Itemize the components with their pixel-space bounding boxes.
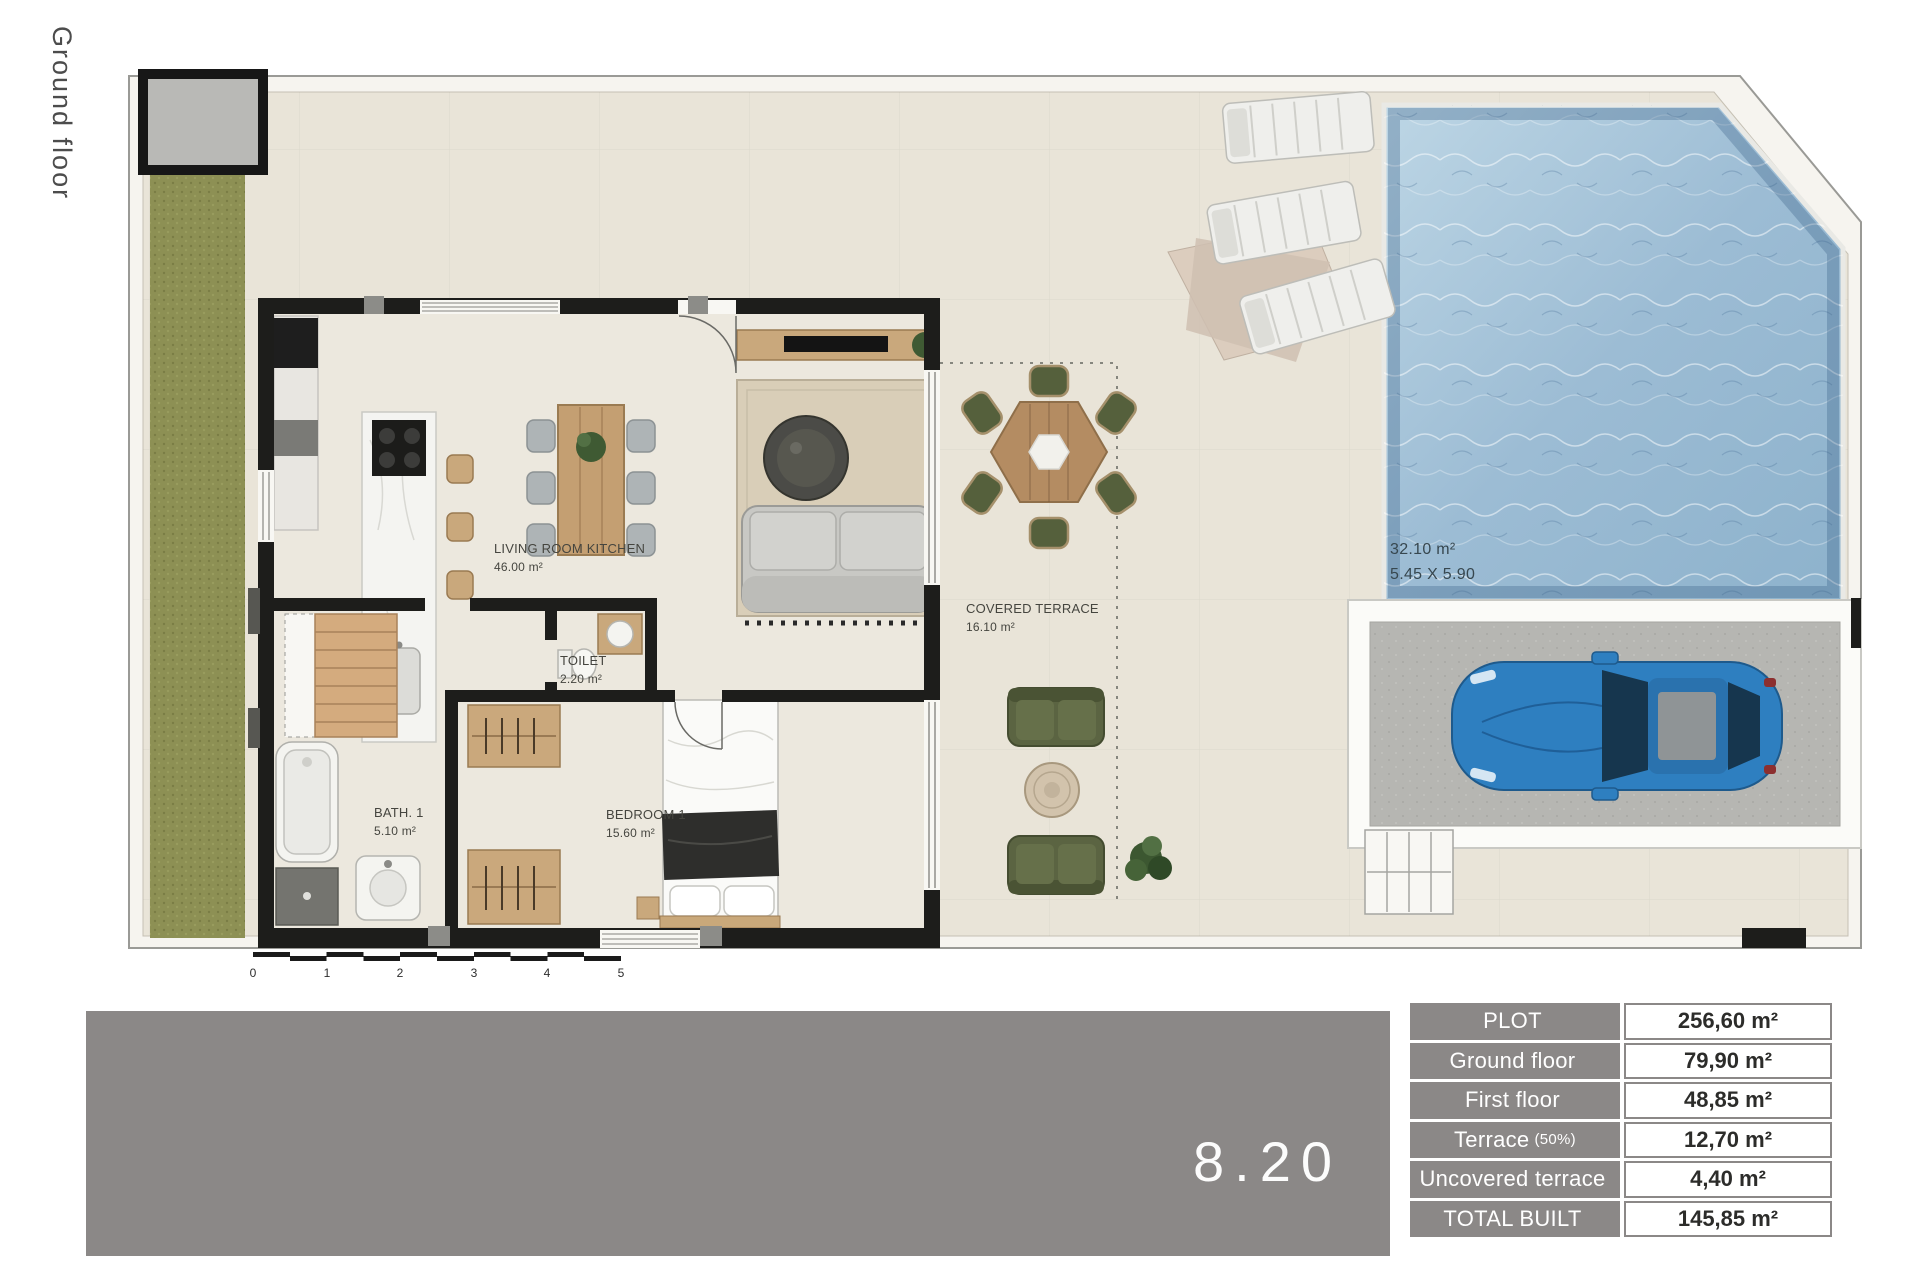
stairs bbox=[285, 614, 397, 737]
room-label-toilet: TOILET 2.20 m² bbox=[560, 652, 606, 687]
scale-tick: 3 bbox=[471, 966, 478, 980]
room-name: COVERED TERRACE bbox=[966, 601, 1099, 616]
row-label: TOTAL BUILT bbox=[1410, 1201, 1620, 1238]
row-label: Terrace(50%) bbox=[1410, 1122, 1620, 1159]
table-row: First floor 48,85 m² bbox=[1410, 1082, 1832, 1119]
room-label-living: LIVING ROOM KITCHEN 46.00 m² bbox=[494, 540, 645, 575]
row-label: PLOT bbox=[1410, 1003, 1620, 1040]
car bbox=[1452, 652, 1782, 800]
bottom-banner: 8.20 bbox=[86, 1011, 1390, 1256]
pool-label: 32.10 m² 5.45 X 5.90 bbox=[1390, 538, 1475, 588]
pool-area: 32.10 m² bbox=[1390, 541, 1456, 558]
room-name: LIVING ROOM KITCHEN bbox=[494, 541, 645, 556]
room-name: BEDROOM 1 bbox=[606, 807, 686, 822]
table-row: TOTAL BUILT 145,85 m² bbox=[1410, 1201, 1832, 1238]
row-label: Ground floor bbox=[1410, 1043, 1620, 1080]
scale-bar-segments bbox=[253, 957, 621, 961]
garden-grass bbox=[150, 172, 245, 938]
row-value: 145,85 m² bbox=[1624, 1201, 1832, 1238]
room-area: 5.10 m² bbox=[374, 824, 416, 838]
room-area: 2.20 m² bbox=[560, 672, 602, 686]
room-name: BATH. 1 bbox=[374, 805, 424, 820]
room-area: 46.00 m² bbox=[494, 560, 543, 574]
room-label-bedroom: BEDROOM 1 15.60 m² bbox=[606, 806, 686, 841]
scale-tick: 1 bbox=[324, 966, 331, 980]
scale-bar: 0 1 2 3 4 5 bbox=[253, 952, 621, 986]
table-row: Ground floor 79,90 m² bbox=[1410, 1043, 1832, 1080]
pool-dimensions: 5.45 X 5.90 bbox=[1390, 566, 1475, 583]
areas-table: PLOT 256,60 m² Ground floor 79,90 m² Fir… bbox=[1410, 1003, 1832, 1240]
pool bbox=[1384, 105, 1843, 602]
row-value: 256,60 m² bbox=[1624, 1003, 1832, 1040]
scale-tick: 5 bbox=[618, 966, 625, 980]
row-label: Uncovered terrace bbox=[1410, 1161, 1620, 1198]
room-label-terrace: COVERED TERRACE 16.10 m² bbox=[966, 600, 1099, 635]
room-area: 16.10 m² bbox=[966, 620, 1015, 634]
scale-tick: 4 bbox=[544, 966, 551, 980]
floor-plan-svg bbox=[0, 0, 1920, 1010]
exterior-stairs bbox=[1365, 830, 1453, 914]
row-value: 48,85 m² bbox=[1624, 1082, 1832, 1119]
row-value: 79,90 m² bbox=[1624, 1043, 1832, 1080]
room-label-bath: BATH. 1 5.10 m² bbox=[374, 804, 424, 839]
row-value: 4,40 m² bbox=[1624, 1161, 1832, 1198]
table-row: Uncovered terrace 4,40 m² bbox=[1410, 1161, 1832, 1198]
entrance-patio bbox=[143, 74, 263, 170]
floor-plan-page: Ground floor bbox=[0, 0, 1920, 1280]
room-name: TOILET bbox=[560, 653, 606, 668]
indoor-dining-set bbox=[527, 405, 655, 556]
room-area: 15.60 m² bbox=[606, 826, 655, 840]
table-row: Terrace(50%) 12,70 m² bbox=[1410, 1122, 1832, 1159]
table-row: PLOT 256,60 m² bbox=[1410, 1003, 1832, 1040]
row-label: First floor bbox=[1410, 1082, 1620, 1119]
plan-number: 8.20 bbox=[1193, 1129, 1342, 1194]
scale-tick: 0 bbox=[250, 966, 257, 980]
scale-tick: 2 bbox=[397, 966, 404, 980]
row-value: 12,70 m² bbox=[1624, 1122, 1832, 1159]
